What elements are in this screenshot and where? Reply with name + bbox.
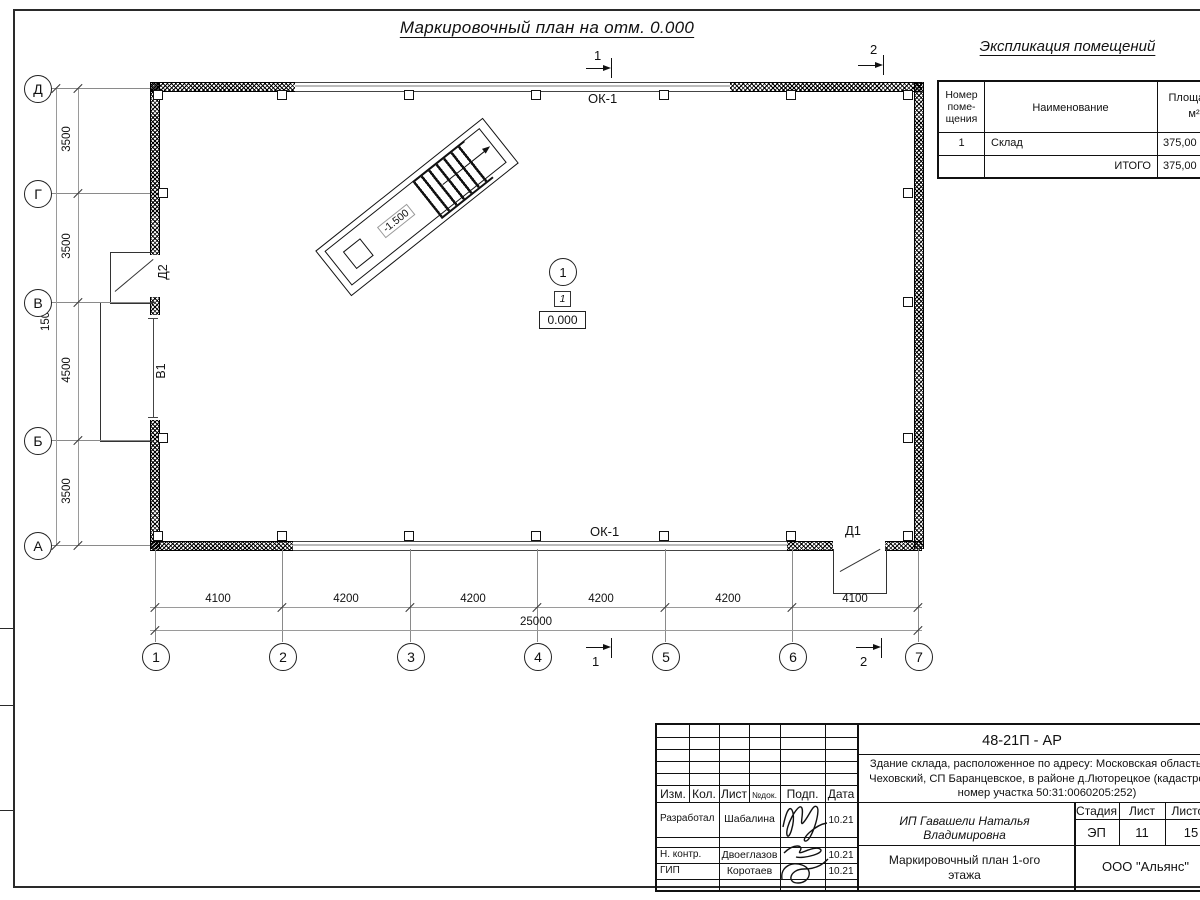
axis-circle-3: 3: [397, 643, 425, 671]
tb-row1-role: Разработал: [660, 813, 714, 824]
tb-line: [857, 754, 1200, 755]
dim-total-label: 25000: [520, 616, 552, 628]
axis-circle-1: 1: [142, 643, 170, 671]
tb-description: Здание склада, расположенное по адресу: …: [862, 757, 1200, 801]
signature-dvoeglazov-korotaev: [774, 839, 836, 891]
dim-label: 4200: [715, 593, 741, 605]
tb-row1-name: Шабалина: [719, 813, 780, 825]
dim-label: 4100: [205, 593, 231, 605]
table-line: [1157, 82, 1158, 177]
door2-label: Д2: [156, 252, 170, 292]
explication-table: Номер поме- щения Наименование Площадь, …: [937, 80, 1200, 179]
section-mark-2-arrowhead-icon: [875, 62, 883, 68]
exp-col1-header: Номер поме- щения: [939, 89, 984, 125]
axis-extension: [50, 545, 150, 546]
axis-circle-5: 5: [652, 643, 680, 671]
axis-circle-v: В: [24, 289, 52, 317]
column: [153, 90, 163, 100]
wall-bottom-left: [150, 541, 293, 551]
tb-row2-role: Н. контр.: [660, 849, 701, 860]
section-mark-2b-arrowhead-icon: [873, 644, 881, 650]
axis-circle-4: 4: [524, 643, 552, 671]
tb-sheet-value: 11: [1119, 825, 1165, 840]
frame-tick: [0, 628, 13, 629]
column: [404, 90, 414, 100]
drawing-title: Маркировочный план на отм. 0.000: [347, 18, 747, 38]
tb-col-kol: Кол.: [689, 787, 719, 801]
frame-top: [13, 9, 1200, 11]
dim-label: 3500: [61, 471, 73, 511]
column: [659, 90, 669, 100]
tb-stage-value: ЭП: [1074, 825, 1119, 840]
column: [786, 531, 796, 541]
tb-line: [857, 802, 1200, 803]
axis-circle-6: 6: [779, 643, 807, 671]
explication-title: Экспликация помещений: [955, 38, 1180, 55]
section-mark-1b-arrowhead-icon: [603, 644, 611, 650]
dim-label: 3500: [61, 226, 73, 266]
tb-row2-name: Двоеглазов: [719, 849, 780, 861]
tb-line: [857, 845, 1200, 846]
axis-extension: [50, 302, 150, 303]
axis-circle-7: 7: [905, 643, 933, 671]
dim-label: 4100: [842, 593, 868, 605]
tb-line: [657, 785, 857, 786]
exp-row2-name: ИТОГО: [1059, 160, 1151, 172]
tb-row3-role: ГИП: [660, 865, 680, 876]
column: [404, 531, 414, 541]
column: [786, 90, 796, 100]
axis-extension: [410, 549, 411, 642]
window-label-bottom: ОК-1: [590, 524, 619, 539]
axis-extension: [537, 549, 538, 642]
dimension-line-total: [150, 630, 922, 631]
tb-stage-label: Стадия: [1074, 804, 1119, 818]
tb-line: [657, 773, 857, 774]
dim-label: 3500: [61, 119, 73, 159]
exp-col2-header: Наименование: [984, 102, 1157, 114]
exp-row1-num: 1: [939, 137, 984, 149]
axis-extension: [50, 440, 150, 441]
wall-top-right: [730, 82, 922, 92]
column: [903, 188, 913, 198]
tb-line: [657, 761, 857, 762]
title-block: Изм. Кол. Лист №док. Подп. Дата Разработ…: [655, 723, 1200, 892]
section-mark-1-label: 1: [594, 48, 601, 63]
tb-sheet-label: Лист: [1119, 804, 1165, 818]
axis-extension: [792, 549, 793, 642]
column: [903, 433, 913, 443]
window-label-top: ОК-1: [588, 91, 617, 106]
wall-bottom-mid: [787, 541, 833, 551]
exp-row1-area: 375,00: [1163, 137, 1197, 149]
tb-line: [1074, 819, 1200, 820]
exp-col3-header: Площадь, м²: [1159, 90, 1200, 122]
section-mark-1b-bar: [611, 638, 612, 658]
axis-circle-g: Г: [24, 180, 52, 208]
table-line: [939, 155, 1200, 156]
column: [659, 531, 669, 541]
axis-extension: [50, 193, 150, 194]
table-line: [984, 82, 985, 177]
dim-label: 4200: [588, 593, 614, 605]
frame-tick: [0, 705, 13, 706]
tb-client: ИП Гавашели Наталья Владимировна: [862, 814, 1067, 842]
dim-label: 4200: [460, 593, 486, 605]
column: [903, 297, 913, 307]
column: [903, 531, 913, 541]
table-line: [939, 132, 1200, 133]
drawing-sheet: Маркировочный план на отм. 0.000 В1 Д2 Д…: [0, 0, 1200, 900]
column: [158, 188, 168, 198]
section-mark-2b-label: 2: [860, 654, 867, 669]
tb-line-thick: [857, 725, 859, 890]
tb-col-izm: Изм.: [657, 787, 689, 801]
axis-extension: [282, 549, 283, 642]
section-mark-1-arrowhead-icon: [603, 65, 611, 71]
tb-doc-number: 48-21П - АР: [897, 733, 1147, 749]
gate-ramp-outline: [100, 302, 154, 442]
column: [277, 90, 287, 100]
dimension-line-total-left: [56, 88, 57, 545]
column: [277, 531, 287, 541]
exp-row1-name: Склад: [991, 137, 1023, 149]
gate-label: В1: [154, 351, 168, 391]
column: [903, 90, 913, 100]
tb-company: ООО "Альянс": [1074, 859, 1200, 874]
section-mark-2b-bar: [881, 638, 882, 658]
axis-circle-2: 2: [269, 643, 297, 671]
floor-elevation-box: 0.000: [539, 311, 586, 329]
tb-line: [657, 737, 857, 738]
wall-right: [914, 82, 924, 549]
tb-doc-title: Маркировочный план 1-ого этажа: [862, 853, 1067, 882]
column: [153, 531, 163, 541]
door1-label: Д1: [845, 523, 861, 538]
wall-top-left: [150, 82, 295, 92]
tb-col-list: Лист: [719, 787, 749, 801]
tb-sheets-value: 15: [1165, 825, 1200, 840]
axis-circle-a: А: [24, 532, 52, 560]
axis-extension: [50, 88, 150, 89]
dimension-line-segments-left: [78, 88, 79, 545]
dim-label: 4500: [61, 350, 73, 390]
column: [531, 90, 541, 100]
section-mark-1b-label: 1: [592, 654, 599, 669]
section-mark-1-bar: [611, 58, 612, 78]
section-mark-2-bar: [883, 55, 884, 75]
floor-type-marker: 1: [554, 291, 571, 307]
tb-row3-name: Коротаев: [719, 865, 780, 877]
exp-row2-area: 375,00: [1163, 160, 1197, 172]
axis-circle-b: Б: [24, 427, 52, 455]
column: [531, 531, 541, 541]
column: [158, 433, 168, 443]
window-bottom: [293, 541, 787, 551]
tb-sheets-label: Листов: [1165, 804, 1200, 818]
room-number-circle: 1: [549, 258, 577, 286]
axis-extension: [665, 549, 666, 642]
frame-tick: [0, 810, 13, 811]
tb-line: [657, 749, 857, 750]
dim-label: 4200: [333, 593, 359, 605]
frame-left: [13, 9, 15, 887]
axis-circle-d: Д: [24, 75, 52, 103]
loading-ramp: -1.500: [315, 118, 519, 297]
section-mark-2-label: 2: [870, 42, 877, 57]
wall-left-upper: [150, 82, 160, 255]
